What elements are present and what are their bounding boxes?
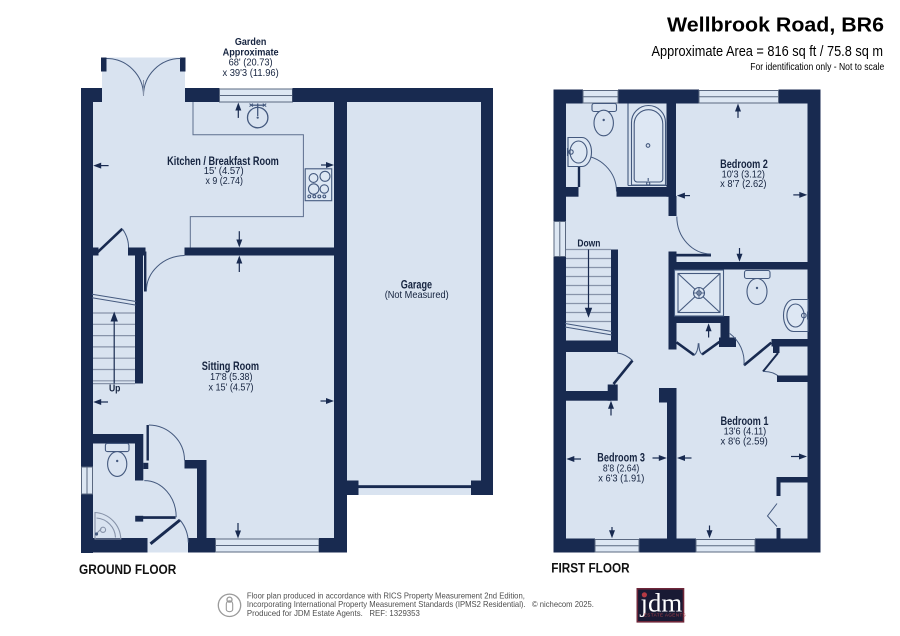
svg-text:Up: Up (109, 382, 121, 394)
svg-text:15' (4.57): 15' (4.57) (204, 166, 244, 177)
svg-text:x 15' (4.57): x 15' (4.57) (208, 382, 253, 393)
svg-text:x 8'7 (2.62): x 8'7 (2.62) (720, 179, 766, 190)
svg-text:Sitting Room: Sitting Room (202, 359, 259, 373)
svg-text:Produced for JDM Estate Agents: Produced for JDM Estate Agents. REF: 132… (247, 609, 420, 618)
svg-text:GROUND FLOOR: GROUND FLOOR (79, 562, 177, 577)
svg-text:For identification only - Not: For identification only - Not to scale (750, 62, 884, 73)
svg-text:Wellbrook Road, BR6: Wellbrook Road, BR6 (667, 14, 884, 37)
svg-text:Approximate Area = 816 sq ft /: Approximate Area = 816 sq ft / 75.8 sq m (652, 43, 884, 60)
svg-text:x 39'3 (11.96): x 39'3 (11.96) (222, 68, 278, 79)
svg-text:Floor plan produced in accorda: Floor plan produced in accordance with R… (247, 591, 525, 600)
svg-text:x 9 (2.74): x 9 (2.74) (205, 176, 243, 187)
svg-text:Bedroom 3: Bedroom 3 (597, 451, 645, 465)
svg-text:Down: Down (577, 238, 600, 250)
svg-text:68' (20.73): 68' (20.73) (229, 58, 273, 69)
svg-text:(Not Measured): (Not Measured) (385, 290, 449, 301)
svg-text:Approximate: Approximate (223, 46, 279, 58)
svg-text:Incorporating International Pr: Incorporating International Property Mea… (247, 600, 594, 609)
svg-text:ESTATE AGENTS: ESTATE AGENTS (644, 612, 686, 617)
svg-text:x 8'6 (2.59): x 8'6 (2.59) (721, 436, 768, 447)
svg-text:FIRST FLOOR: FIRST FLOOR (551, 561, 630, 576)
svg-text:x 6'3 (1.91): x 6'3 (1.91) (598, 474, 644, 485)
